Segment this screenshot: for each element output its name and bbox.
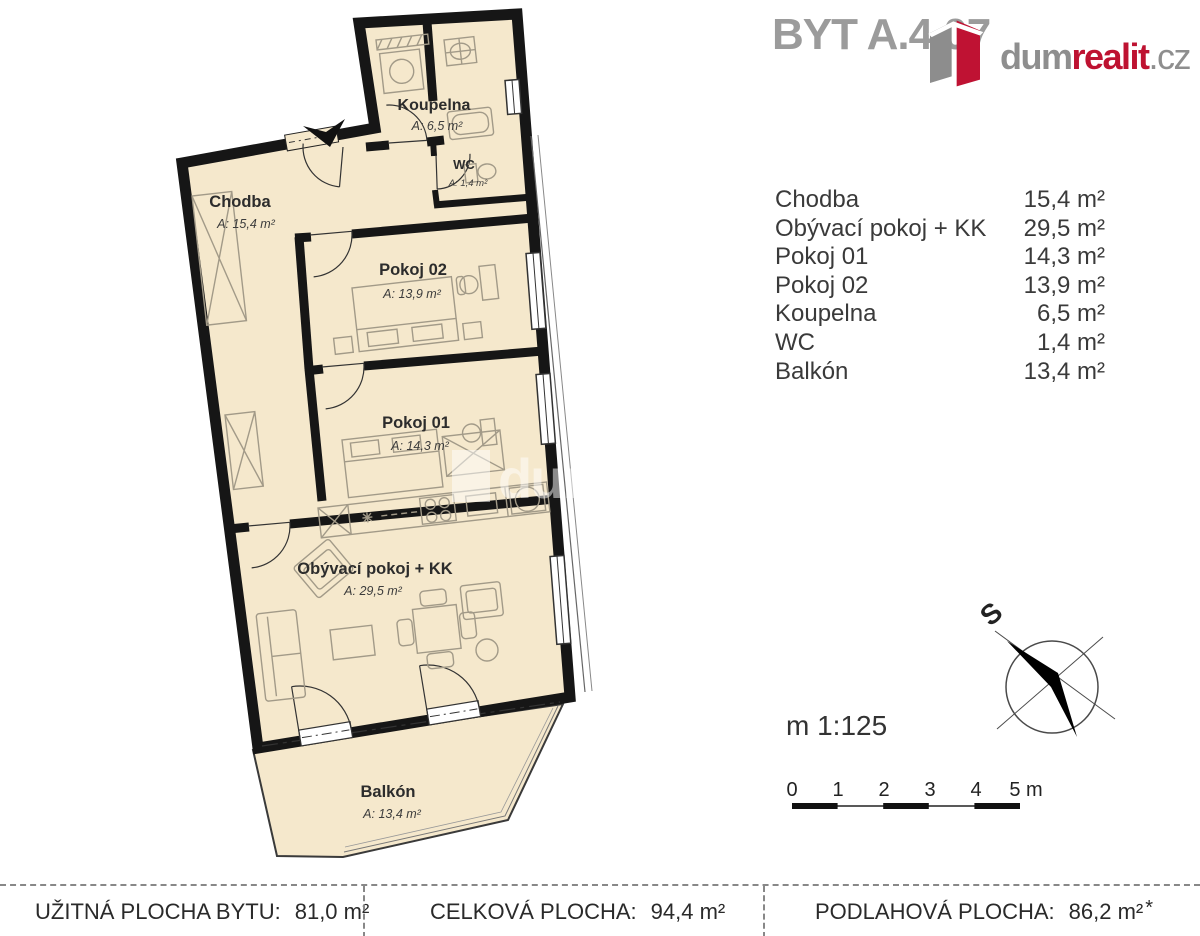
area-chodba: A: 15,4 m²: [216, 217, 275, 231]
legend-row: Koupelna6,5 m²: [775, 300, 1105, 329]
logo-dum: dum: [1000, 36, 1072, 77]
svg-text:0: 0: [786, 780, 797, 801]
header: BYT A.4.07 dumrealit.cz: [772, 10, 1192, 96]
legend-room-area: 13,9 m²: [1024, 272, 1105, 301]
area-pokoj01: A: 14,3 m²: [390, 439, 449, 453]
compass-north-label: S: [974, 596, 1008, 632]
legend-room-area: 6,5 m²: [1037, 300, 1105, 329]
watermark-text: dumrealit.cz: [498, 447, 770, 510]
logo-wordmark: dumrealit.cz: [1000, 36, 1190, 78]
legend-room-area: 14,3 m²: [1024, 243, 1105, 272]
total-celkova: CELKOVÁ PLOCHA: 94,4 m²: [363, 886, 763, 936]
legend-row: Balkón13,4 m²: [775, 358, 1105, 387]
svg-text:3: 3: [924, 780, 935, 801]
legend-room-area: 15,4 m²: [1024, 186, 1105, 215]
room-legend: Chodba15,4 m² Obývací pokoj + KK29,5 m² …: [775, 186, 1105, 386]
map-scale-text: m 1:125: [786, 710, 887, 742]
legend-row: Pokoj 0213,9 m²: [775, 272, 1105, 301]
legend-room-name: Balkón: [775, 358, 848, 387]
legend-row: WC1,4 m²: [775, 329, 1105, 358]
total-label: UŽITNÁ PLOCHA BYTU:: [35, 899, 281, 925]
label-pokoj01: Pokoj 01: [382, 414, 450, 432]
legend-room-name: Chodba: [775, 186, 859, 215]
svg-text:2: 2: [878, 780, 889, 801]
svg-text:1: 1: [832, 780, 843, 801]
total-label: CELKOVÁ PLOCHA:: [430, 899, 637, 925]
label-koupelna: Koupelna: [398, 97, 471, 114]
svg-text:5 m: 5 m: [1009, 780, 1042, 801]
total-podlahova: PODLAHOVÁ PLOCHA: 86,2 m² *: [763, 886, 1200, 936]
floor-plan-page: Koupelna A: 6,5 m² WC A: 1,4 m² Chodba A…: [0, 0, 1200, 936]
dumrealit-logo-icon: [925, 12, 985, 94]
total-label: PODLAHOVÁ PLOCHA:: [815, 899, 1055, 925]
totals-bar: UŽITNÁ PLOCHA BYTU: 81,0 m² CELKOVÁ PLOC…: [0, 884, 1200, 936]
legend-room-name: Koupelna: [775, 300, 876, 329]
legend-row: Obývací pokoj + KK29,5 m²: [775, 215, 1105, 244]
compass: S: [955, 593, 1155, 783]
floor-plan-drawing: Koupelna A: 6,5 m² WC A: 1,4 m² Chodba A…: [0, 0, 770, 880]
legend-room-area: 1,4 m²: [1037, 329, 1105, 358]
label-balkon: Balkón: [360, 783, 415, 801]
svg-text:4: 4: [970, 780, 981, 801]
area-balkon: A: 13,4 m²: [362, 807, 421, 821]
area-koupelna: A: 6,5 m²: [411, 119, 464, 133]
label-wc: WC: [453, 157, 475, 172]
legend-room-name: Obývací pokoj + KK: [775, 215, 986, 244]
logo-realit: realit: [1072, 36, 1149, 77]
watermark: dumrealit.cz: [452, 447, 770, 510]
logo-cz: .cz: [1149, 36, 1191, 77]
footnote-asterisk: *: [1145, 897, 1153, 920]
label-chodba: Chodba: [209, 193, 271, 211]
total-value: 81,0 m²: [295, 899, 370, 925]
label-pokoj02: Pokoj 02: [379, 261, 447, 279]
label-obyvaci: Obývací pokoj + KK: [297, 560, 453, 578]
area-wc: A: 1,4 m²: [448, 178, 488, 189]
total-uzitna: UŽITNÁ PLOCHA BYTU: 81,0 m²: [0, 886, 363, 936]
compass-needle-icon: [1007, 641, 1077, 737]
legend-room-name: Pokoj 02: [775, 272, 868, 301]
area-obyvaci: A: 29,5 m²: [343, 584, 402, 598]
total-value: 86,2 m²: [1069, 899, 1144, 925]
legend-row: Pokoj 0114,3 m²: [775, 243, 1105, 272]
apartment-outline: [182, 14, 570, 748]
legend-room-name: WC: [775, 329, 815, 358]
legend-room-name: Pokoj 01: [775, 243, 868, 272]
scale-bar: 0 1 2 3 4 5 m: [783, 780, 1043, 816]
total-value: 94,4 m²: [651, 899, 726, 925]
legend-room-area: 13,4 m²: [1024, 358, 1105, 387]
legend-row: Chodba15,4 m²: [775, 186, 1105, 215]
area-pokoj02: A: 13,9 m²: [382, 287, 441, 301]
legend-room-area: 29,5 m²: [1024, 215, 1105, 244]
